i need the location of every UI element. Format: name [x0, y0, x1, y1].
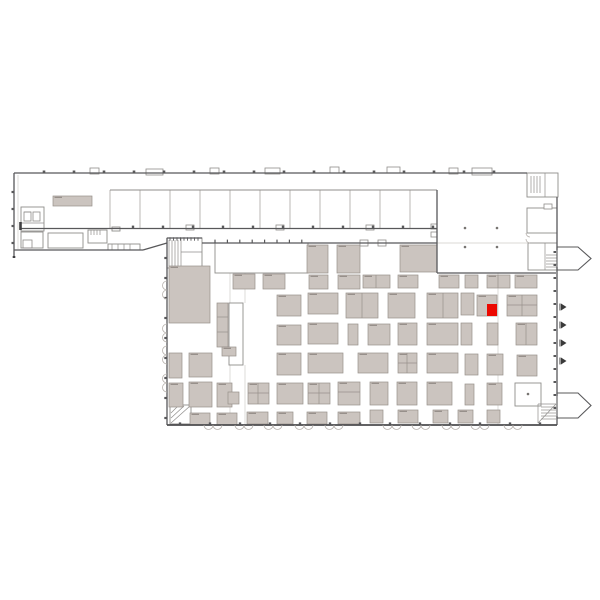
column-tick	[133, 171, 136, 174]
booth[interactable]	[427, 382, 452, 405]
column-tick	[419, 422, 421, 424]
column-tick	[164, 257, 167, 259]
column-tick	[373, 171, 376, 174]
booth[interactable]	[433, 410, 448, 423]
column-tick	[554, 394, 557, 396]
column-tick	[463, 171, 466, 174]
column-tick	[403, 171, 406, 174]
booth[interactable]	[370, 382, 388, 405]
floor-plan-svg	[0, 0, 600, 600]
booth[interactable]	[398, 410, 418, 423]
column-tick	[252, 226, 254, 228]
column-tick	[164, 337, 167, 339]
booth[interactable]	[465, 384, 474, 405]
booth[interactable]	[398, 275, 418, 288]
column-tick	[554, 342, 557, 344]
structure-dot	[527, 393, 530, 396]
column-tick	[164, 357, 167, 359]
booth[interactable]	[277, 295, 301, 316]
column-tick	[554, 251, 557, 253]
column-tick	[402, 226, 404, 228]
structure-dot	[496, 246, 499, 249]
column-tick	[432, 226, 434, 228]
column-tick	[223, 171, 226, 174]
booth[interactable]	[248, 383, 269, 404]
booth[interactable]	[439, 275, 459, 288]
booth[interactable]	[217, 303, 228, 347]
column-tick	[239, 422, 241, 424]
column-tick	[43, 171, 46, 174]
booth[interactable]	[487, 323, 498, 345]
booth[interactable]	[277, 325, 301, 345]
booth[interactable]	[363, 275, 390, 288]
column-tick	[191, 237, 192, 240]
exit-arrow-icon	[561, 358, 567, 365]
column-tick	[214, 240, 215, 244]
structure-dot	[496, 227, 499, 230]
column-tick	[301, 240, 302, 244]
door-swing-arc	[163, 374, 168, 392]
structure-dot	[464, 227, 467, 230]
door-glyph	[387, 167, 400, 173]
column-tick	[509, 422, 511, 424]
booth[interactable]	[427, 293, 458, 318]
door-swing-arc	[163, 324, 168, 342]
column-tick	[554, 264, 557, 266]
exit-arrow-icon	[561, 304, 567, 311]
column-tick	[12, 225, 15, 227]
booth[interactable]	[461, 323, 472, 345]
booth[interactable]	[358, 353, 388, 373]
column-tick	[164, 377, 167, 379]
booth[interactable]	[338, 275, 360, 289]
booth[interactable]	[398, 323, 417, 345]
exit-arrow-icon	[561, 340, 567, 347]
column-tick	[164, 397, 167, 399]
door-swing-arc	[526, 233, 530, 243]
booth[interactable]	[277, 383, 303, 404]
column-tick	[73, 171, 76, 174]
column-tick	[198, 237, 199, 240]
booth[interactable]	[308, 353, 343, 373]
booth-layer	[53, 196, 537, 425]
column-tick	[180, 237, 181, 240]
booth[interactable]	[458, 410, 473, 423]
booth[interactable]	[465, 354, 478, 375]
selected-booth-highlight[interactable]	[487, 304, 497, 316]
booth[interactable]	[233, 274, 255, 289]
column-tick	[12, 242, 15, 244]
door-swing-arc	[163, 346, 168, 364]
room-outline	[527, 208, 557, 233]
booth[interactable]	[517, 355, 537, 376]
room-outline	[48, 233, 83, 248]
column-tick	[554, 277, 557, 279]
column-tick	[164, 417, 167, 419]
booth[interactable]	[516, 323, 537, 345]
booth[interactable]	[388, 293, 415, 318]
booth[interactable]	[400, 245, 437, 272]
door-glyph	[472, 168, 492, 175]
entrance-vestibule-layer	[557, 247, 591, 418]
column-tick	[252, 240, 253, 244]
column-tick	[12, 191, 15, 193]
booth[interactable]	[308, 293, 338, 314]
column-tick	[449, 422, 451, 424]
column-tick	[554, 290, 557, 292]
entrance-vestibule[interactable]	[557, 247, 591, 270]
column-tick	[479, 422, 481, 424]
column-tick	[177, 237, 178, 240]
column-tick	[554, 381, 557, 383]
booth[interactable]	[427, 323, 458, 345]
entrance-vestibule[interactable]	[557, 393, 591, 418]
booth[interactable]	[487, 410, 500, 423]
column-tick	[276, 240, 277, 244]
door-glyph	[544, 204, 552, 209]
room-outline	[21, 207, 44, 231]
booth[interactable]	[263, 274, 285, 289]
column-tick	[289, 240, 290, 244]
column-tick	[170, 237, 171, 240]
wing-room-divider-layer	[110, 190, 410, 228]
column-tick	[343, 171, 346, 174]
column-tick	[179, 422, 181, 424]
column-tick	[554, 303, 557, 305]
booth[interactable]	[368, 324, 390, 345]
booth[interactable]	[487, 383, 502, 405]
structure-dot	[464, 246, 467, 249]
column-tick	[539, 422, 541, 424]
column-tick	[103, 171, 106, 174]
selected-booth-highlight-layer	[487, 304, 497, 316]
column-tick	[209, 422, 211, 424]
booth[interactable]	[169, 383, 183, 407]
column-tick	[222, 226, 224, 228]
column-tick	[264, 240, 265, 244]
column-tick	[173, 237, 174, 240]
booth[interactable]	[461, 293, 474, 315]
booth[interactable]	[427, 353, 458, 373]
booth[interactable]	[308, 323, 338, 344]
booth[interactable]	[309, 275, 328, 289]
booth[interactable]	[338, 382, 360, 405]
column-tick	[132, 226, 134, 228]
column-tick	[12, 208, 15, 210]
heavy-wall-stub-layer	[14, 222, 21, 258]
column-tick	[554, 368, 557, 370]
booth[interactable]	[169, 353, 182, 378]
column-tick	[554, 316, 557, 318]
column-tick	[269, 422, 271, 424]
column-tick	[193, 171, 196, 174]
booth[interactable]	[465, 275, 478, 288]
booth[interactable]	[515, 275, 537, 288]
column-tick	[329, 422, 331, 424]
booth[interactable]	[169, 266, 210, 323]
booth[interactable]	[277, 353, 301, 375]
door-glyph	[431, 232, 437, 237]
booth[interactable]	[189, 382, 212, 407]
door-glyph	[146, 169, 163, 175]
booth[interactable]	[307, 245, 328, 273]
column-tick	[194, 237, 195, 240]
booth[interactable]	[370, 410, 383, 423]
room-outline	[527, 173, 558, 197]
column-tick	[433, 171, 436, 174]
column-tick	[239, 240, 240, 244]
column-tick	[493, 171, 496, 174]
column-tick	[372, 226, 374, 228]
booth[interactable]	[348, 324, 358, 345]
floor-plan-viewer	[0, 0, 600, 600]
exit-arrow-icon-layer	[561, 304, 567, 365]
booth[interactable]	[487, 354, 503, 375]
column-tick	[163, 171, 166, 174]
door-glyph-layer	[90, 167, 552, 246]
door-glyph	[330, 167, 339, 173]
booth[interactable]	[397, 382, 417, 405]
column-tick	[312, 226, 314, 228]
exit-arrow-icon	[561, 322, 567, 329]
room-outline	[528, 243, 557, 270]
room-outline	[215, 243, 308, 273]
column-tick	[192, 226, 194, 228]
column-tick	[227, 240, 228, 244]
column-tick	[313, 171, 316, 174]
booth[interactable]	[228, 392, 239, 404]
booth[interactable]	[337, 245, 360, 273]
column-tick	[164, 277, 167, 279]
column-tick	[162, 226, 164, 228]
booth[interactable]	[189, 353, 212, 377]
column-tick	[554, 407, 557, 409]
column-tick	[187, 237, 188, 240]
column-tick	[299, 422, 301, 424]
column-tick	[359, 422, 361, 424]
column-tick	[389, 422, 391, 424]
column-tick	[282, 226, 284, 228]
column-tick	[283, 171, 286, 174]
column-tick	[342, 226, 344, 228]
column-tick	[164, 317, 167, 319]
wall	[143, 243, 167, 250]
door-swing-arc	[163, 281, 168, 299]
column-tick	[554, 355, 557, 357]
column-tick	[253, 171, 256, 174]
column-tick	[554, 329, 557, 331]
column-tick	[184, 237, 185, 240]
booth[interactable]	[487, 275, 510, 288]
